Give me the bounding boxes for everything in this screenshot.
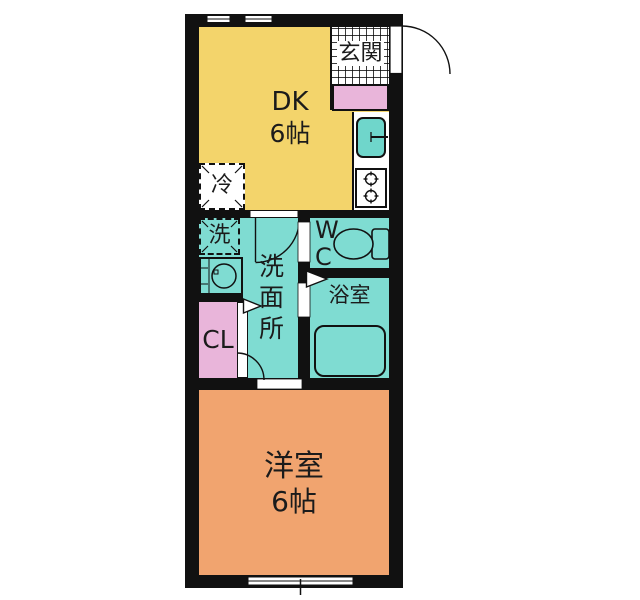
western-name: 洋室 <box>264 449 324 484</box>
wall-dk-washroom <box>185 210 403 218</box>
dk-size: 6帖 <box>244 120 336 148</box>
wall-basin-closet <box>185 295 243 302</box>
vanity-basin-icon <box>199 257 243 295</box>
western-size: 6帖 <box>199 487 389 518</box>
wall-washroom-wet <box>298 218 310 390</box>
kitchen-sink-icon <box>356 117 386 158</box>
closet-label: CL <box>199 302 237 378</box>
wall-right <box>389 14 403 588</box>
wc-label: W C <box>315 217 339 271</box>
wall-top <box>185 14 403 27</box>
western-room-label: 洋室 6帖 <box>199 450 389 518</box>
washer-label: 洗 <box>199 218 240 255</box>
bathroom-label: 浴室 <box>310 284 389 307</box>
dk-room-label: DK 6帖 <box>244 88 336 147</box>
floor-plan: DK 6帖 玄関 冷 洗 洗面所 W C 浴室 CL 洋室 6帖 <box>0 0 640 600</box>
bathtub-icon <box>314 325 386 377</box>
wall-bottom <box>185 575 403 588</box>
washroom-label: 洗面所 <box>256 253 284 346</box>
closet-door-panel <box>237 302 248 378</box>
stove-icon <box>355 168 387 208</box>
shoe-cabinet <box>332 84 389 111</box>
wall-washroom-western <box>185 378 403 390</box>
dk-name: DK <box>271 87 308 117</box>
refrigerator-label: 冷 <box>199 163 245 210</box>
entrance-label: 玄関 <box>332 42 389 66</box>
